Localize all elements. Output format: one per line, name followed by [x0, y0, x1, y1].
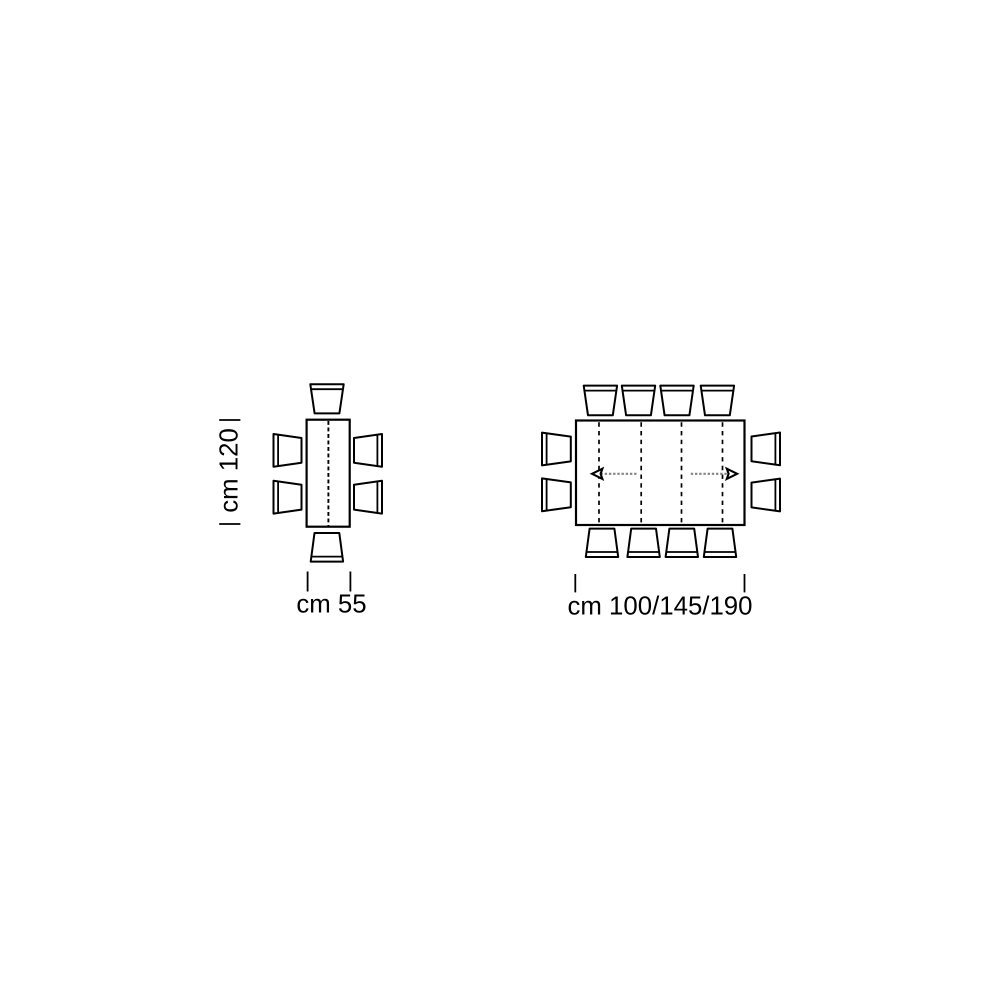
svg-text:cm 120: cm 120 — [216, 428, 244, 513]
svg-text:cm 55: cm 55 — [296, 591, 366, 619]
svg-text:cm 100/145/190: cm 100/145/190 — [567, 593, 752, 621]
